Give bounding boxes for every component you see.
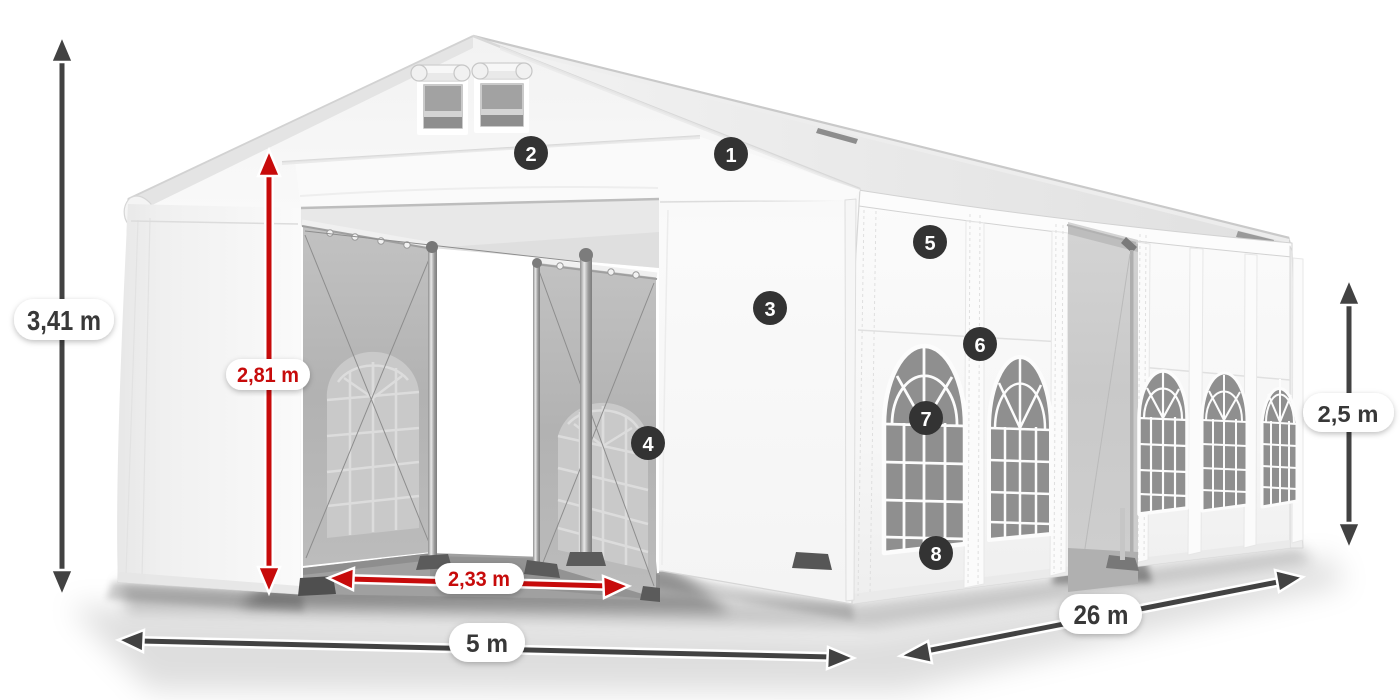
svg-text:3,41 m: 3,41 m [27,305,101,336]
svg-text:3: 3 [764,299,775,321]
svg-text:7: 7 [920,409,931,431]
svg-text:6: 6 [974,335,985,357]
svg-text:2,81 m: 2,81 m [237,363,299,387]
svg-text:1: 1 [725,145,736,167]
svg-text:5: 5 [924,233,935,255]
svg-text:2: 2 [525,144,536,166]
svg-text:5 m: 5 m [466,630,508,658]
svg-text:8: 8 [930,544,941,566]
svg-text:2,33 m: 2,33 m [448,567,510,591]
svg-text:4: 4 [642,434,654,456]
svg-text:26 m: 26 m [1074,600,1129,630]
svg-text:2,5 m: 2,5 m [1318,401,1379,427]
